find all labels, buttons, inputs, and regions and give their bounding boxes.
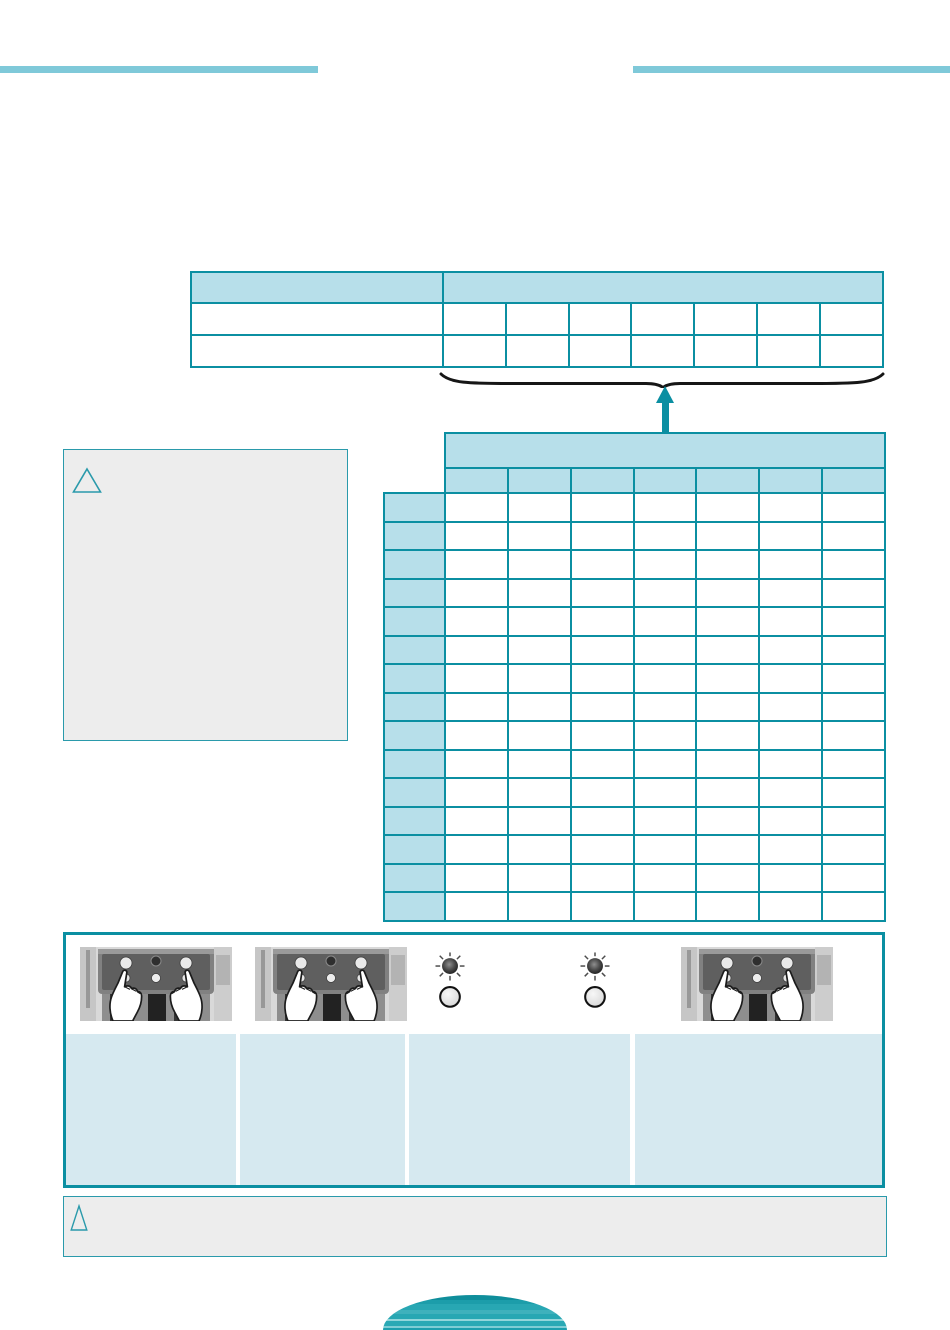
detail-value-cell xyxy=(759,807,822,836)
detail-value-cell xyxy=(696,550,759,579)
caption-box xyxy=(66,1034,236,1185)
detail-value-cell xyxy=(508,864,571,893)
detail-value-cell xyxy=(445,807,508,836)
detail-value-cell xyxy=(634,550,697,579)
detail-value-cell xyxy=(445,636,508,665)
detail-value-cell xyxy=(508,636,571,665)
detail-value-cell xyxy=(634,693,697,722)
detail-value-cell xyxy=(696,693,759,722)
footer-ellipse-shape xyxy=(383,1295,567,1330)
footer-ellipse-decoration xyxy=(383,1295,567,1330)
detail-value-cell xyxy=(696,664,759,693)
spacer-cell xyxy=(384,433,445,468)
detail-value-cell xyxy=(696,864,759,893)
detail-value-cell xyxy=(759,864,822,893)
detail-value-cell xyxy=(822,664,885,693)
detail-value-cell xyxy=(759,607,822,636)
detail-value-cell xyxy=(696,493,759,522)
summary-header-group-cell xyxy=(443,272,883,303)
detail-value-cell xyxy=(759,579,822,608)
detail-row-header-cell xyxy=(384,807,445,836)
detail-column-header-cell xyxy=(634,468,697,493)
detail-value-cell xyxy=(508,522,571,551)
detail-row-header-cell xyxy=(384,721,445,750)
detail-value-cell xyxy=(571,835,634,864)
detail-value-cell xyxy=(445,664,508,693)
detail-value-cell xyxy=(571,493,634,522)
detail-row-header-cell xyxy=(384,579,445,608)
detail-value-cell xyxy=(822,892,885,921)
detail-value-cell xyxy=(759,750,822,779)
caption-box xyxy=(409,1034,630,1185)
detail-value-cell xyxy=(445,607,508,636)
warning-triangle-icon xyxy=(70,1204,88,1232)
detail-value-cell xyxy=(508,579,571,608)
summary-value-cell xyxy=(631,335,694,367)
up-arrow-head xyxy=(656,386,674,403)
detail-column-header-cell xyxy=(759,468,822,493)
detail-value-cell xyxy=(508,807,571,836)
detail-value-cell xyxy=(508,693,571,722)
detail-value-cell xyxy=(822,607,885,636)
summary-value-cell xyxy=(631,303,694,335)
detail-value-cell xyxy=(759,493,822,522)
detail-value-cell xyxy=(822,693,885,722)
detail-value-cell xyxy=(759,721,822,750)
detail-value-cell xyxy=(759,522,822,551)
header-rule-left xyxy=(0,66,318,73)
detail-row-header-cell xyxy=(384,550,445,579)
detail-column-header-cell xyxy=(822,468,885,493)
detail-value-cell xyxy=(822,636,885,665)
detail-value-cell xyxy=(696,607,759,636)
detail-value-cell xyxy=(634,835,697,864)
detail-value-cell xyxy=(696,835,759,864)
spacer-cell xyxy=(384,468,445,493)
detail-value-cell xyxy=(571,607,634,636)
detail-value-cell xyxy=(571,522,634,551)
detail-value-cell xyxy=(571,721,634,750)
detail-value-cell xyxy=(759,892,822,921)
summary-value-cell xyxy=(694,335,757,367)
summary-value-cell xyxy=(820,335,883,367)
detail-value-cell xyxy=(634,807,697,836)
summary-value-cell xyxy=(757,303,820,335)
detail-value-cell xyxy=(571,579,634,608)
summary-value-cell xyxy=(757,335,820,367)
detail-value-cell xyxy=(634,493,697,522)
detail-value-cell xyxy=(445,693,508,722)
detail-value-cell xyxy=(759,693,822,722)
detail-value-cell xyxy=(571,892,634,921)
led-pair-blinking-and-off-icon xyxy=(434,952,466,1010)
detail-value-cell xyxy=(634,721,697,750)
detail-value-cell xyxy=(696,778,759,807)
detail-value-cell xyxy=(571,636,634,665)
summary-value-cell xyxy=(506,303,569,335)
detail-value-cell xyxy=(696,807,759,836)
instruction-panel xyxy=(63,932,885,1188)
detail-value-cell xyxy=(822,522,885,551)
summary-label-cell xyxy=(191,303,443,335)
led-pair-blinking-and-off-icon xyxy=(579,952,611,1010)
detail-value-cell xyxy=(508,721,571,750)
detail-value-cell xyxy=(508,493,571,522)
summary-header-left-cell xyxy=(191,272,443,303)
detail-value-cell xyxy=(445,835,508,864)
detail-value-cell xyxy=(634,664,697,693)
detail-value-cell xyxy=(445,522,508,551)
detail-column-header-cell xyxy=(571,468,634,493)
note-box xyxy=(63,1196,887,1257)
summary-value-cell xyxy=(694,303,757,335)
detail-group-header-cell xyxy=(445,433,885,468)
detail-row-header-cell xyxy=(384,750,445,779)
detail-table xyxy=(383,432,886,922)
detail-row-header-cell xyxy=(384,636,445,665)
detail-value-cell xyxy=(759,550,822,579)
detail-value-cell xyxy=(634,892,697,921)
caption-box xyxy=(240,1034,405,1185)
caption-box xyxy=(635,1034,882,1185)
detail-value-cell xyxy=(822,835,885,864)
detail-column-header-cell xyxy=(696,468,759,493)
detail-value-cell xyxy=(634,607,697,636)
detail-value-cell xyxy=(759,835,822,864)
detail-value-cell xyxy=(696,750,759,779)
detail-row-header-cell xyxy=(384,835,445,864)
detail-value-cell xyxy=(696,579,759,608)
detail-value-cell xyxy=(822,864,885,893)
detail-row-header-cell xyxy=(384,864,445,893)
summary-value-cell xyxy=(820,303,883,335)
summary-value-cell xyxy=(443,303,506,335)
detail-value-cell xyxy=(696,522,759,551)
warning-triangle-icon xyxy=(72,467,102,494)
detail-value-cell xyxy=(822,807,885,836)
detail-value-cell xyxy=(508,892,571,921)
detail-value-cell xyxy=(445,892,508,921)
manual-page xyxy=(0,0,950,1330)
detail-value-cell xyxy=(571,664,634,693)
detail-value-cell xyxy=(508,750,571,779)
summary-label-cell xyxy=(191,335,443,367)
detail-value-cell xyxy=(445,864,508,893)
up-arrow-stem xyxy=(662,402,669,432)
caution-box xyxy=(63,449,348,741)
detail-value-cell xyxy=(822,778,885,807)
detail-value-cell xyxy=(571,750,634,779)
detail-row-header-cell xyxy=(384,607,445,636)
detail-value-cell xyxy=(822,750,885,779)
detail-value-cell xyxy=(508,778,571,807)
detail-value-cell xyxy=(822,721,885,750)
summary-table xyxy=(190,271,884,368)
detail-value-cell xyxy=(634,864,697,893)
detail-row-header-cell xyxy=(384,778,445,807)
summary-value-cell xyxy=(569,335,632,367)
detail-value-cell xyxy=(822,579,885,608)
detail-column-header-cell xyxy=(508,468,571,493)
detail-value-cell xyxy=(759,778,822,807)
detail-value-cell xyxy=(445,579,508,608)
detail-value-cell xyxy=(634,750,697,779)
detail-value-cell xyxy=(571,693,634,722)
detail-value-cell xyxy=(696,721,759,750)
detail-value-cell xyxy=(634,522,697,551)
summary-value-cell xyxy=(569,303,632,335)
press-two-buttons-photo xyxy=(681,947,833,1021)
detail-value-cell xyxy=(571,550,634,579)
detail-row-header-cell xyxy=(384,693,445,722)
detail-row-header-cell xyxy=(384,522,445,551)
detail-value-cell xyxy=(822,550,885,579)
detail-value-cell xyxy=(822,493,885,522)
header-rule-right xyxy=(633,66,950,73)
detail-value-cell xyxy=(634,636,697,665)
detail-value-cell xyxy=(508,835,571,864)
detail-value-cell xyxy=(571,807,634,836)
detail-column-header-cell xyxy=(445,468,508,493)
detail-row-header-cell xyxy=(384,664,445,693)
detail-value-cell xyxy=(508,607,571,636)
detail-value-cell xyxy=(759,664,822,693)
detail-value-cell xyxy=(571,778,634,807)
detail-value-cell xyxy=(445,493,508,522)
detail-value-cell xyxy=(445,778,508,807)
detail-value-cell xyxy=(445,721,508,750)
summary-value-cell xyxy=(506,335,569,367)
summary-value-cell xyxy=(443,335,506,367)
press-two-buttons-photo xyxy=(80,947,232,1021)
detail-value-cell xyxy=(445,750,508,779)
detail-value-cell xyxy=(634,579,697,608)
detail-value-cell xyxy=(508,550,571,579)
detail-value-cell xyxy=(445,550,508,579)
detail-value-cell xyxy=(696,636,759,665)
press-two-buttons-photo xyxy=(255,947,407,1021)
detail-value-cell xyxy=(634,778,697,807)
detail-value-cell xyxy=(508,664,571,693)
detail-value-cell xyxy=(571,864,634,893)
detail-value-cell xyxy=(759,636,822,665)
detail-row-header-cell xyxy=(384,892,445,921)
detail-value-cell xyxy=(696,892,759,921)
detail-row-header-cell xyxy=(384,493,445,522)
